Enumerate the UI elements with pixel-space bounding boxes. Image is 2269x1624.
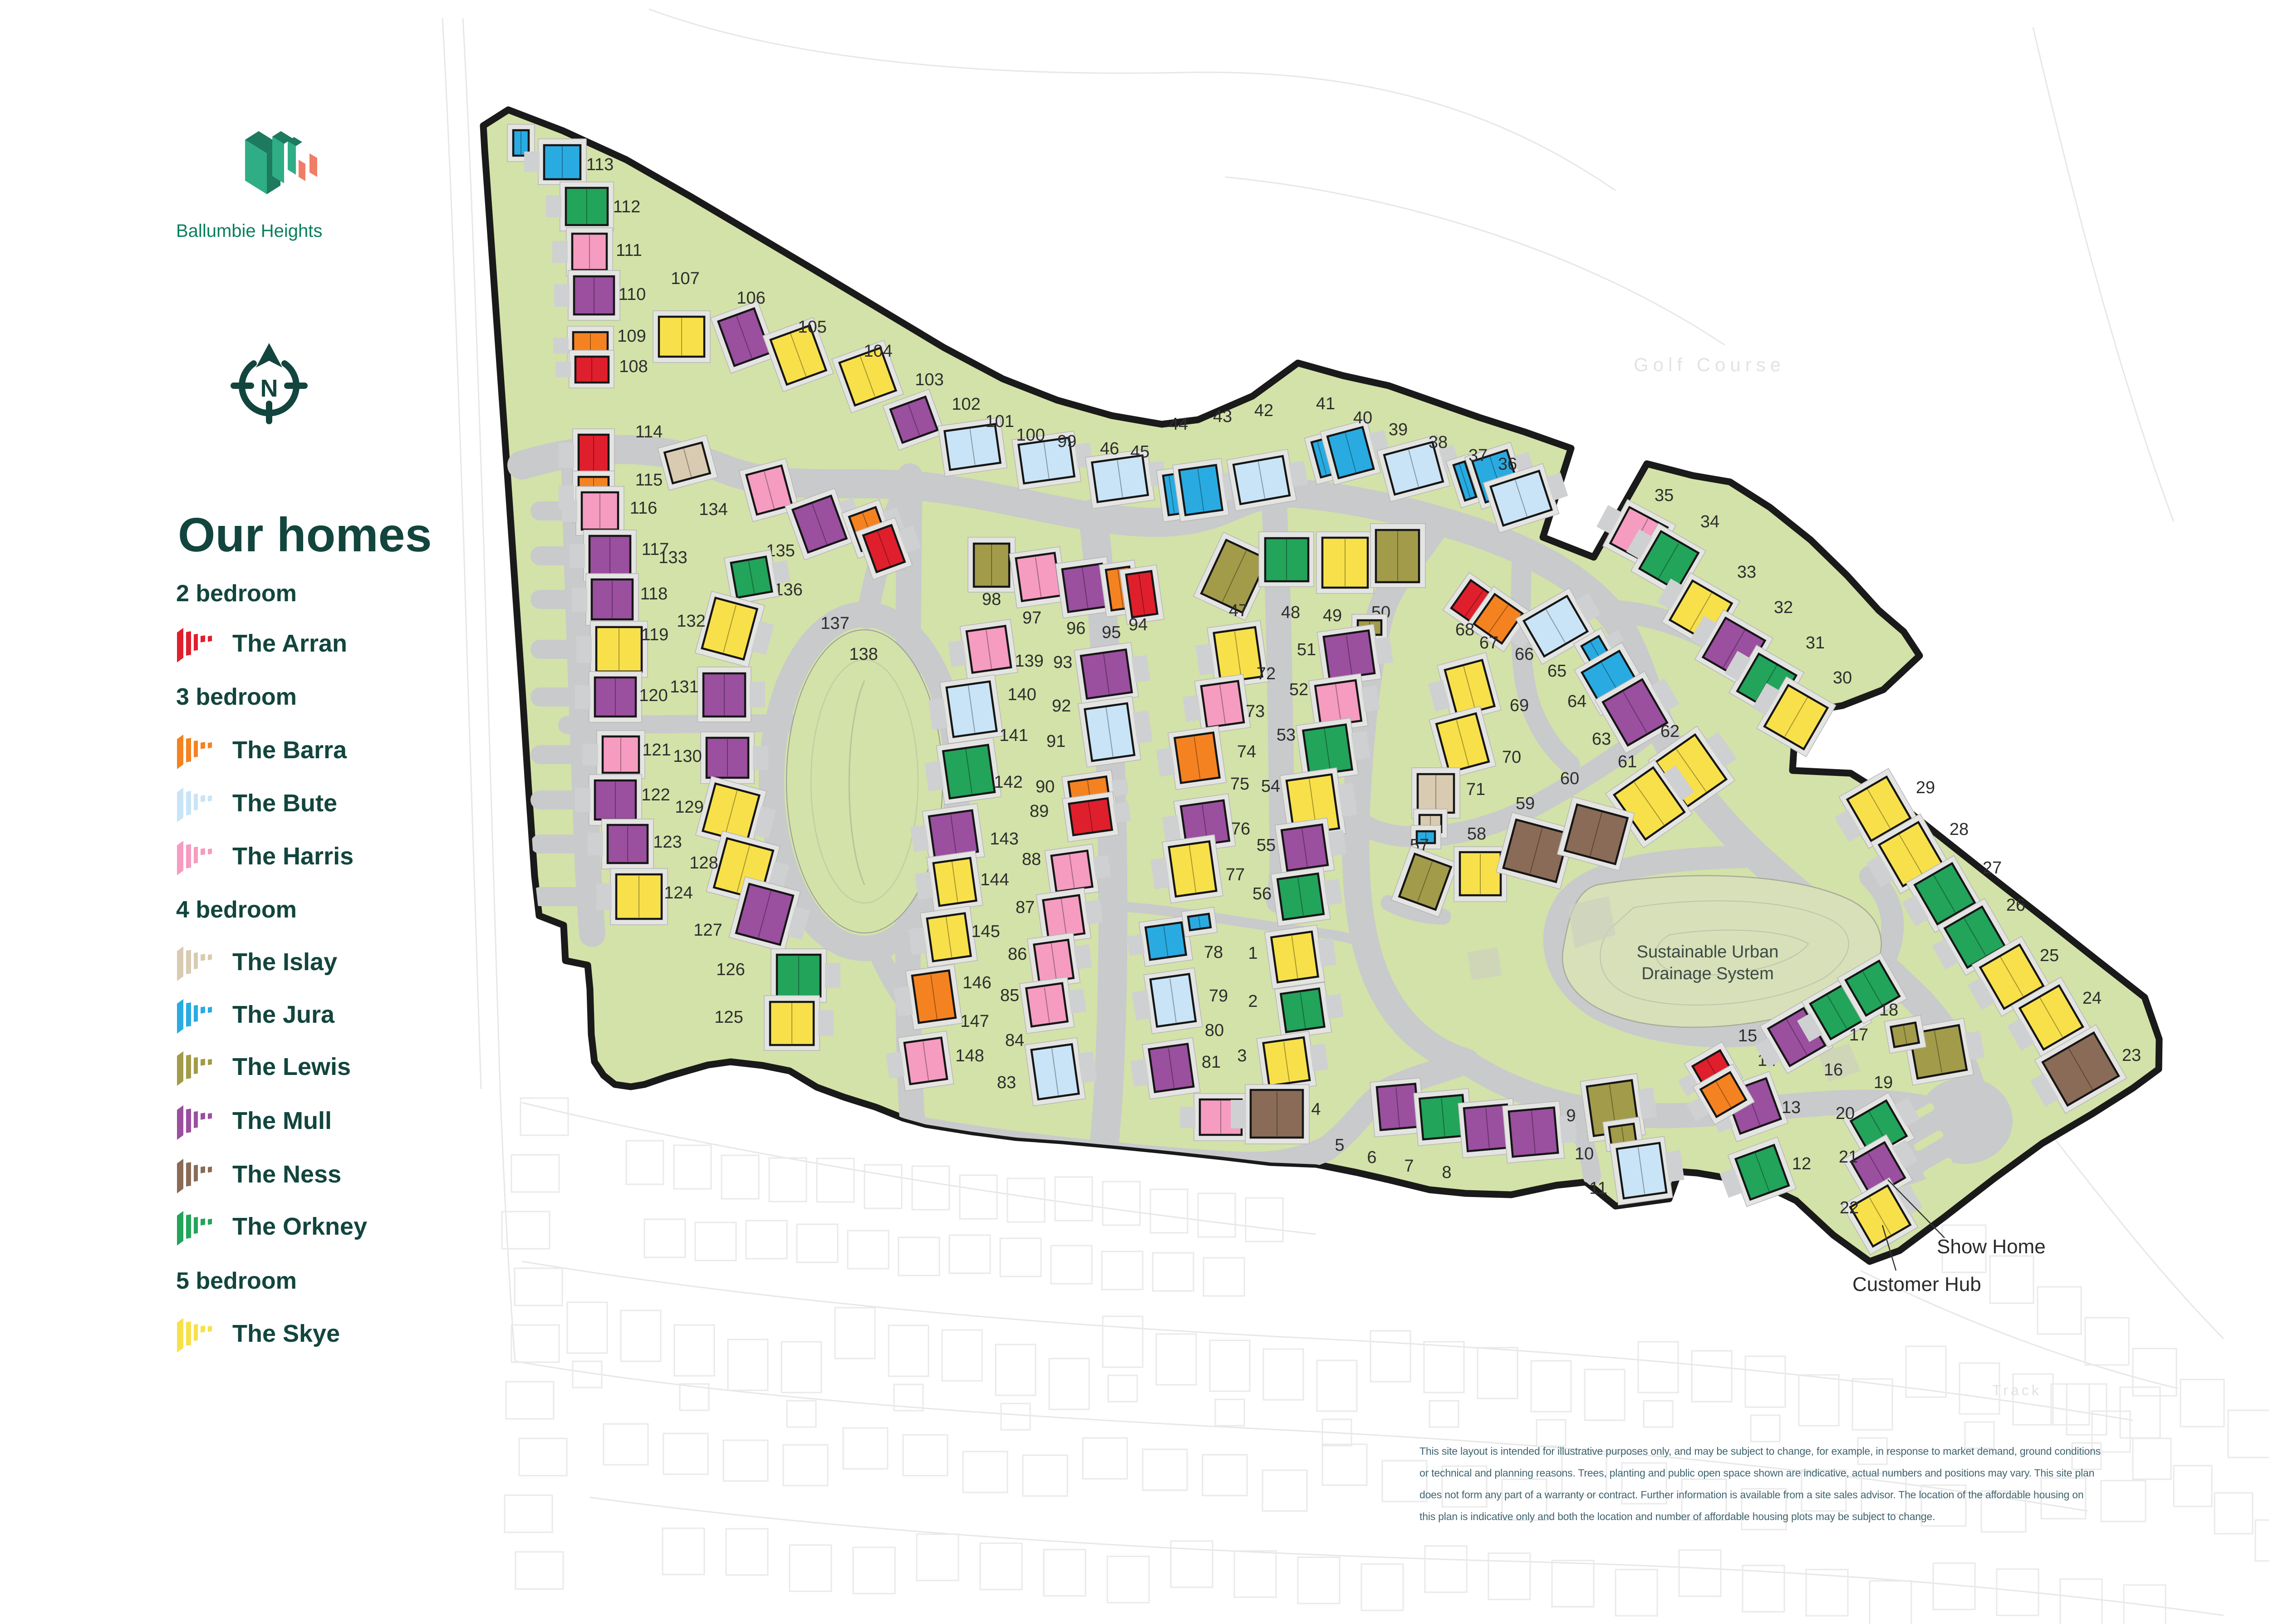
svg-text:61: 61 <box>1618 752 1637 771</box>
svg-text:N: N <box>260 375 278 402</box>
svg-text:or technical and planning reas: or technical and planning reasons. Trees… <box>1419 1467 2094 1479</box>
svg-text:100: 100 <box>1016 426 1045 445</box>
svg-text:128: 128 <box>689 854 718 873</box>
svg-text:87: 87 <box>1016 898 1035 917</box>
svg-text:17: 17 <box>1849 1025 1868 1045</box>
svg-text:86: 86 <box>1008 945 1027 964</box>
svg-text:63: 63 <box>1592 730 1611 749</box>
svg-text:29: 29 <box>1916 778 1935 797</box>
svg-text:59: 59 <box>1516 794 1535 813</box>
svg-text:21: 21 <box>1839 1148 1858 1167</box>
svg-text:34: 34 <box>1700 512 1719 531</box>
svg-text:118: 118 <box>640 584 668 603</box>
svg-text:53: 53 <box>1277 726 1296 745</box>
svg-text:38: 38 <box>1429 433 1448 452</box>
svg-text:94: 94 <box>1129 615 1148 634</box>
svg-text:19: 19 <box>1874 1073 1893 1092</box>
svg-text:64: 64 <box>1567 692 1586 711</box>
svg-text:112: 112 <box>613 197 641 216</box>
svg-text:15: 15 <box>1738 1026 1757 1045</box>
svg-text:76: 76 <box>1231 819 1250 839</box>
svg-text:101: 101 <box>985 412 1014 431</box>
svg-text:1: 1 <box>1248 944 1257 963</box>
svg-text:93: 93 <box>1053 653 1072 672</box>
svg-text:18: 18 <box>1879 1001 1898 1020</box>
svg-text:39: 39 <box>1389 420 1408 439</box>
svg-text:97: 97 <box>1022 608 1041 628</box>
svg-text:142: 142 <box>994 773 1022 792</box>
svg-text:40: 40 <box>1353 408 1372 427</box>
svg-text:6: 6 <box>1367 1148 1376 1167</box>
svg-text:115: 115 <box>635 471 663 490</box>
svg-text:36: 36 <box>1498 455 1517 474</box>
svg-text:146: 146 <box>963 973 991 992</box>
svg-text:141: 141 <box>999 726 1028 745</box>
svg-text:4: 4 <box>1311 1100 1321 1119</box>
svg-text:25: 25 <box>2040 946 2059 965</box>
svg-text:88: 88 <box>1022 850 1041 869</box>
svg-text:131: 131 <box>670 677 698 697</box>
svg-text:2 bedroom: 2 bedroom <box>176 580 297 607</box>
svg-text:140: 140 <box>1007 685 1036 704</box>
svg-text:54: 54 <box>1261 777 1280 796</box>
svg-text:The Orkney: The Orkney <box>232 1213 367 1240</box>
svg-text:109: 109 <box>617 327 646 346</box>
svg-text:102: 102 <box>952 395 980 414</box>
svg-text:125: 125 <box>714 1008 743 1027</box>
svg-text:91: 91 <box>1046 732 1066 751</box>
svg-text:55: 55 <box>1257 836 1276 855</box>
svg-text:89: 89 <box>1030 802 1049 821</box>
svg-text:119: 119 <box>641 625 669 644</box>
svg-text:95: 95 <box>1102 623 1121 642</box>
svg-text:144: 144 <box>980 870 1009 889</box>
svg-text:81: 81 <box>1202 1053 1221 1072</box>
svg-text:The Barra: The Barra <box>232 736 347 764</box>
svg-text:does not form any part of a wa: does not form any part of a warranty or … <box>1419 1489 2083 1501</box>
svg-text:12: 12 <box>1792 1154 1811 1173</box>
svg-text:16: 16 <box>1824 1060 1843 1079</box>
svg-text:The Lewis: The Lewis <box>232 1053 351 1080</box>
svg-text:22: 22 <box>1840 1198 1859 1217</box>
svg-text:70: 70 <box>1502 748 1521 767</box>
svg-text:23: 23 <box>2122 1046 2141 1065</box>
svg-text:98: 98 <box>982 590 1001 609</box>
svg-text:51: 51 <box>1297 640 1316 659</box>
svg-text:71: 71 <box>1466 780 1485 799</box>
svg-text:35: 35 <box>1655 486 1674 505</box>
svg-text:126: 126 <box>716 960 745 979</box>
svg-text:114: 114 <box>635 422 663 442</box>
svg-text:110: 110 <box>619 285 646 304</box>
svg-text:84: 84 <box>1005 1031 1024 1050</box>
svg-text:5: 5 <box>1335 1136 1344 1155</box>
svg-text:108: 108 <box>619 357 648 376</box>
svg-text:10: 10 <box>1575 1144 1594 1163</box>
svg-text:145: 145 <box>971 922 1000 941</box>
svg-text:139: 139 <box>1015 652 1043 671</box>
svg-text:83: 83 <box>997 1073 1016 1092</box>
svg-text:Track: Track <box>1992 1382 2042 1398</box>
svg-text:103: 103 <box>915 370 943 389</box>
svg-text:13: 13 <box>1782 1098 1801 1117</box>
svg-text:121: 121 <box>642 741 671 760</box>
svg-text:The Ness: The Ness <box>232 1161 341 1188</box>
svg-text:79: 79 <box>1209 986 1228 1006</box>
svg-text:30: 30 <box>1833 668 1852 687</box>
svg-text:7: 7 <box>1404 1157 1414 1176</box>
svg-text:106: 106 <box>737 289 765 308</box>
svg-text:65: 65 <box>1547 662 1567 681</box>
svg-text:99: 99 <box>1057 432 1076 451</box>
svg-text:132: 132 <box>677 612 705 631</box>
svg-text:68: 68 <box>1455 620 1474 639</box>
svg-text:The Skye: The Skye <box>232 1320 340 1347</box>
svg-text:104: 104 <box>864 342 892 361</box>
svg-text:105: 105 <box>798 318 826 337</box>
svg-text:4 bedroom: 4 bedroom <box>176 897 297 923</box>
svg-text:138: 138 <box>849 645 878 664</box>
svg-text:2: 2 <box>1248 992 1257 1011</box>
svg-text:69: 69 <box>1510 696 1529 715</box>
svg-text:90: 90 <box>1036 777 1055 796</box>
svg-text:28: 28 <box>1950 820 1969 839</box>
svg-text:This site layout is intended f: This site layout is intended for illustr… <box>1419 1445 2101 1457</box>
svg-text:47: 47 <box>1229 601 1248 620</box>
svg-text:46: 46 <box>1100 439 1119 458</box>
svg-text:80: 80 <box>1205 1021 1224 1040</box>
svg-text:Golf Course: Golf Course <box>1634 354 1785 375</box>
svg-text:66: 66 <box>1515 645 1534 664</box>
svg-text:124: 124 <box>664 883 692 903</box>
svg-text:24: 24 <box>2082 989 2102 1008</box>
svg-text:72: 72 <box>1257 664 1276 683</box>
svg-text:Ballumbie Heights: Ballumbie Heights <box>176 221 322 241</box>
svg-text:96: 96 <box>1066 619 1085 638</box>
svg-text:11: 11 <box>1589 1179 1607 1198</box>
svg-text:116: 116 <box>630 499 658 518</box>
svg-text:130: 130 <box>673 747 702 766</box>
svg-text:41: 41 <box>1316 394 1335 413</box>
svg-text:43: 43 <box>1213 407 1232 426</box>
svg-text:143: 143 <box>990 829 1018 849</box>
svg-text:147: 147 <box>960 1012 989 1031</box>
svg-text:148: 148 <box>955 1046 984 1065</box>
svg-text:107: 107 <box>671 269 699 288</box>
svg-text:58: 58 <box>1467 824 1486 844</box>
svg-text:The Bute: The Bute <box>232 790 337 817</box>
svg-text:60: 60 <box>1560 769 1579 788</box>
svg-text:133: 133 <box>658 548 687 567</box>
svg-text:45: 45 <box>1130 442 1149 461</box>
svg-text:this plan is indicative only a: this plan is indicative only and both th… <box>1419 1511 1935 1522</box>
svg-text:127: 127 <box>693 921 722 940</box>
svg-text:111: 111 <box>616 241 642 260</box>
svg-text:62: 62 <box>1660 722 1680 741</box>
svg-text:33: 33 <box>1737 563 1756 582</box>
svg-text:The Harris: The Harris <box>232 843 354 870</box>
svg-text:120: 120 <box>639 686 668 705</box>
svg-text:3 bedroom: 3 bedroom <box>176 684 297 710</box>
svg-text:27: 27 <box>1983 859 2002 878</box>
svg-text:52: 52 <box>1289 680 1308 699</box>
svg-text:74: 74 <box>1237 742 1256 761</box>
svg-text:9: 9 <box>1566 1106 1576 1125</box>
svg-text:123: 123 <box>653 833 682 852</box>
svg-text:The Arran: The Arran <box>232 630 347 657</box>
svg-text:44: 44 <box>1169 415 1188 434</box>
svg-text:73: 73 <box>1246 702 1265 721</box>
svg-text:42: 42 <box>1254 401 1273 420</box>
svg-text:Drainage System: Drainage System <box>1641 964 1773 983</box>
svg-text:122: 122 <box>641 785 670 805</box>
svg-text:32: 32 <box>1774 598 1793 617</box>
svg-text:5 bedroom: 5 bedroom <box>176 1268 297 1294</box>
svg-text:37: 37 <box>1468 446 1488 465</box>
svg-text:Show Home: Show Home <box>1937 1236 2046 1258</box>
svg-text:Our homes: Our homes <box>178 508 432 562</box>
svg-text:75: 75 <box>1230 775 1249 794</box>
svg-text:The Islay: The Islay <box>232 948 337 976</box>
svg-text:77: 77 <box>1226 865 1245 884</box>
svg-text:31: 31 <box>1806 633 1825 653</box>
svg-text:48: 48 <box>1281 603 1300 622</box>
svg-text:Customer Hub: Customer Hub <box>1852 1273 1981 1295</box>
svg-text:67: 67 <box>1479 633 1498 653</box>
svg-text:85: 85 <box>1000 986 1019 1005</box>
svg-text:26: 26 <box>2006 896 2025 915</box>
svg-text:113: 113 <box>586 155 614 174</box>
svg-text:The Mull: The Mull <box>232 1107 332 1134</box>
svg-text:49: 49 <box>1323 606 1342 625</box>
svg-text:78: 78 <box>1204 943 1223 962</box>
svg-text:129: 129 <box>675 798 703 817</box>
svg-text:134: 134 <box>699 500 727 519</box>
svg-text:The Jura: The Jura <box>232 1001 335 1028</box>
svg-text:92: 92 <box>1052 697 1071 716</box>
svg-text:56: 56 <box>1252 884 1272 903</box>
svg-text:Sustainable Urban: Sustainable Urban <box>1637 942 1779 962</box>
svg-text:137: 137 <box>820 614 849 633</box>
svg-text:3: 3 <box>1237 1046 1247 1065</box>
svg-text:8: 8 <box>1442 1163 1451 1182</box>
svg-text:20: 20 <box>1836 1104 1855 1123</box>
